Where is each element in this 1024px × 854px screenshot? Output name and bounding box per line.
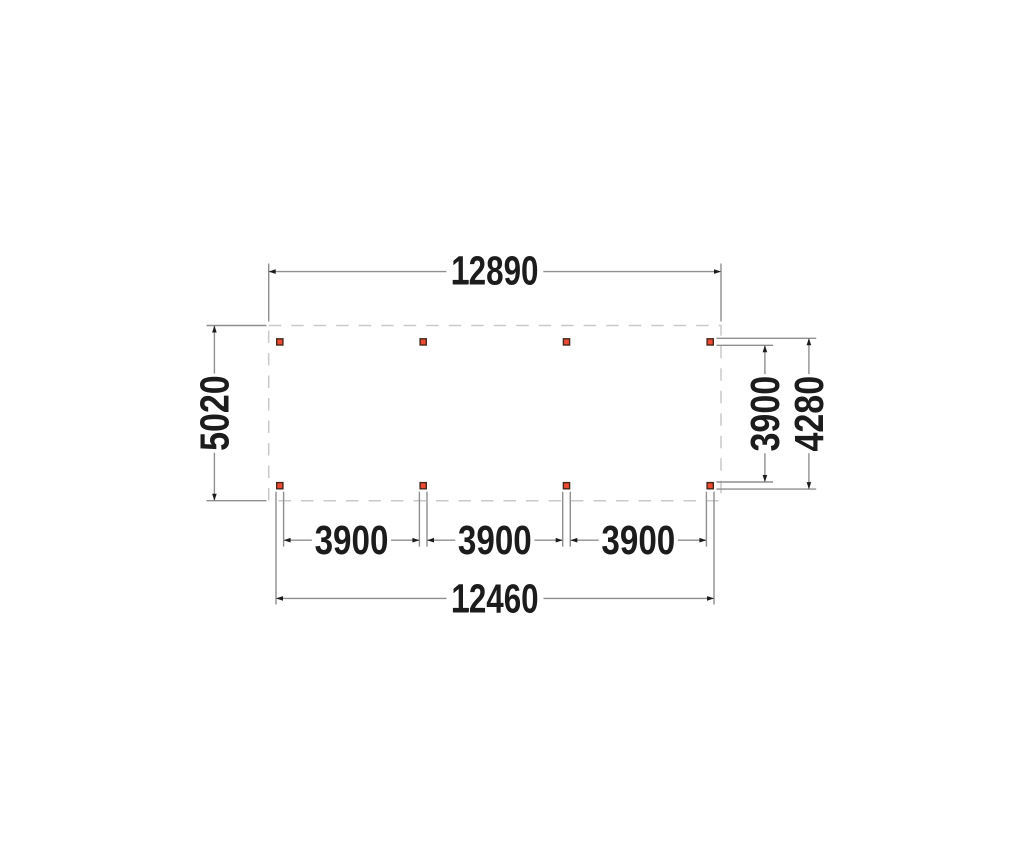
svg-text:4280: 4280 [786, 376, 831, 452]
svg-text:5020: 5020 [191, 375, 236, 451]
svg-text:3900: 3900 [315, 517, 389, 563]
svg-text:12890: 12890 [451, 247, 538, 293]
svg-text:3900: 3900 [742, 376, 787, 452]
svg-text:3900: 3900 [601, 517, 675, 563]
svg-text:3900: 3900 [458, 517, 532, 563]
svg-text:12460: 12460 [451, 575, 538, 621]
